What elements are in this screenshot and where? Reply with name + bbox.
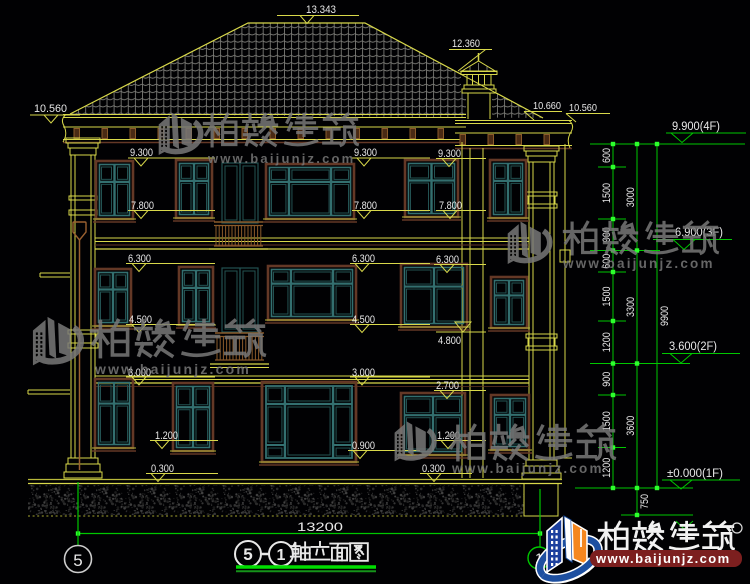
svg-text:10.560: 10.560: [34, 103, 67, 115]
svg-text:9.300: 9.300: [130, 147, 153, 159]
svg-text:10.560: 10.560: [569, 102, 597, 114]
svg-text:3000: 3000: [625, 187, 637, 207]
svg-text:13200: 13200: [297, 520, 343, 534]
svg-text:12.360: 12.360: [452, 38, 480, 50]
svg-text:5: 5: [243, 545, 252, 564]
svg-text:1200: 1200: [601, 332, 613, 352]
svg-text:1500: 1500: [601, 183, 613, 203]
svg-text:750: 750: [639, 494, 651, 509]
svg-text:www.baijunjz.com: www.baijunjz.com: [595, 551, 731, 566]
svg-text:1500: 1500: [601, 287, 613, 307]
svg-text:www.baijunjz.com: www.baijunjz.com: [562, 256, 715, 271]
svg-text:9.300: 9.300: [354, 147, 377, 159]
svg-text:600: 600: [601, 148, 613, 163]
svg-text:www.baijunjz.com: www.baijunjz.com: [207, 151, 355, 166]
svg-text:10.660: 10.660: [533, 100, 561, 112]
svg-text:www.baijunjz.com: www.baijunjz.com: [94, 361, 251, 377]
svg-text:±0.000(1F): ±0.000(1F): [667, 468, 723, 480]
svg-text:www.baijunjz.com: www.baijunjz.com: [451, 461, 604, 476]
svg-text:9.900(4F): 9.900(4F): [672, 121, 720, 133]
svg-text:3600: 3600: [625, 416, 637, 436]
svg-text:900: 900: [601, 372, 613, 387]
svg-text:3.600(2F): 3.600(2F): [669, 341, 717, 353]
svg-text:1: 1: [277, 547, 286, 564]
svg-text:13.343: 13.343: [306, 4, 336, 16]
svg-text:4.800: 4.800: [438, 335, 461, 347]
svg-text:3300: 3300: [625, 297, 637, 317]
svg-text:9900: 9900: [659, 306, 671, 326]
svg-text:5: 5: [73, 551, 82, 570]
